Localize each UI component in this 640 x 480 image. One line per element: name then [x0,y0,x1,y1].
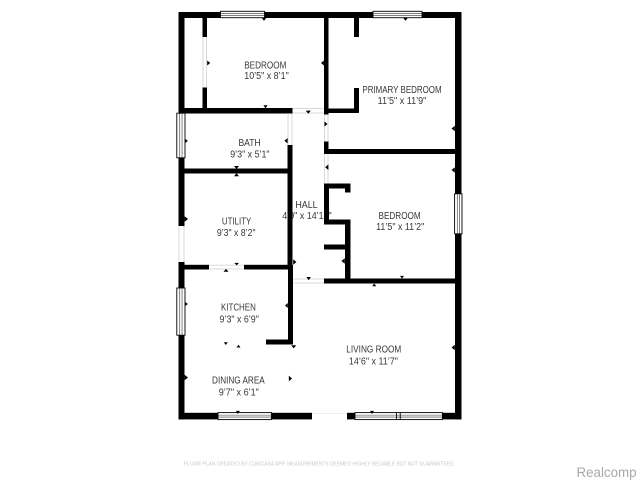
svg-text:10’5" x 8’1": 10’5" x 8’1" [244,71,289,82]
svg-text:DINING AREA: DINING AREA [212,375,265,386]
svg-text:BEDROOM: BEDROOM [379,211,421,222]
svg-text:BEDROOM: BEDROOM [244,60,286,71]
svg-text:9’3" x 6’9": 9’3" x 6’9" [220,315,260,326]
svg-text:BATH: BATH [238,138,260,149]
svg-text:FLOOR PLAN CREATED BY CUBICASA: FLOOR PLAN CREATED BY CUBICASA APP. MEAS… [184,461,455,467]
svg-text:14’6" x 11’7": 14’6" x 11’7" [349,357,399,368]
svg-text:HALL: HALL [295,200,318,211]
svg-text:11’5" x 11’9": 11’5" x 11’9" [378,96,427,107]
svg-text:9’3" x 8’2": 9’3" x 8’2" [217,228,256,239]
svg-text:UTILITY: UTILITY [222,216,252,227]
svg-text:Realcomp: Realcomp [577,464,637,480]
svg-text:PRIMARY BEDROOM: PRIMARY BEDROOM [362,85,441,96]
svg-text:9’7" x 6’1": 9’7" x 6’1" [219,388,260,399]
svg-text:9’3" x 5’1": 9’3" x 5’1" [230,150,270,161]
svg-text:11’5" x 11’2": 11’5" x 11’2" [376,222,425,233]
svg-text:LIVING ROOM: LIVING ROOM [346,345,401,356]
svg-text:KITCHEN: KITCHEN [221,302,256,313]
